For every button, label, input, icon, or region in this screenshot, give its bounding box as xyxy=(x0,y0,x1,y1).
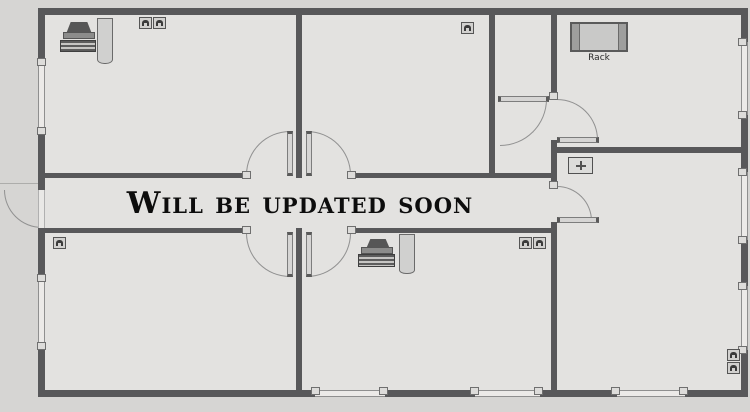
monitor-base-icon xyxy=(63,32,95,39)
wall-right xyxy=(741,350,748,397)
door-jamb xyxy=(242,171,251,179)
wall-port-icon xyxy=(153,17,166,29)
wall-bottom xyxy=(385,390,475,397)
window-joint xyxy=(738,38,747,46)
window xyxy=(617,390,685,397)
entrance-door-arc xyxy=(4,190,42,228)
wall-corridor-top xyxy=(351,173,553,178)
wall-rack-room-bottom xyxy=(551,147,748,153)
wall-left xyxy=(38,346,45,397)
door-jamb xyxy=(549,181,558,189)
window-joint xyxy=(679,387,688,395)
corridor-bottom-right-door-leaf xyxy=(306,232,312,277)
watermark-text: Will be updated soon xyxy=(78,185,522,223)
window xyxy=(38,62,45,131)
rack-side-bar xyxy=(572,24,580,50)
window-joint xyxy=(311,387,320,395)
rack-label: Rack xyxy=(568,53,630,63)
window-joint xyxy=(470,387,479,395)
wall-port-icon xyxy=(461,22,474,34)
window-joint xyxy=(738,111,747,119)
window xyxy=(475,390,540,397)
wall-lower-rooms-divider xyxy=(296,228,302,390)
wall-corridor-bottom xyxy=(351,228,557,233)
window-joint xyxy=(37,342,46,350)
window xyxy=(315,390,385,397)
door-jamb xyxy=(549,92,558,100)
wall-bottom xyxy=(540,390,617,397)
floor-plan: Rack Will be updated soon xyxy=(0,0,750,412)
wall-bottom xyxy=(685,390,748,397)
monitor-base-icon xyxy=(361,247,393,254)
wall-right xyxy=(741,115,748,172)
wall-corridor-bottom xyxy=(45,228,246,233)
wall-left xyxy=(38,228,45,278)
desk-icon xyxy=(399,234,415,274)
window xyxy=(38,278,45,346)
wall-port-icon xyxy=(533,237,546,249)
window-joint xyxy=(738,282,747,290)
right-room-door-leaf xyxy=(557,217,599,223)
corridor-top-left-door-leaf xyxy=(287,131,293,176)
corridor-top-right-door-leaf xyxy=(306,131,312,176)
window xyxy=(741,42,748,115)
window xyxy=(741,286,748,350)
wall-upper-rooms-divider xyxy=(296,15,302,178)
wall-top-middle-room-right xyxy=(489,15,495,178)
door-jamb xyxy=(242,226,251,234)
vestibule-door-leaf xyxy=(498,96,549,102)
window-joint xyxy=(37,58,46,66)
window-joint xyxy=(37,127,46,135)
vent-icon xyxy=(568,157,593,174)
keyboard-icon xyxy=(358,254,395,267)
wall-top xyxy=(38,8,748,15)
corridor-bottom-left-door-leaf xyxy=(287,232,293,277)
rack-side-bar xyxy=(618,24,626,50)
wall-port-icon xyxy=(53,237,66,249)
wall-right xyxy=(741,8,748,42)
window-joint xyxy=(534,387,543,395)
window-joint xyxy=(738,236,747,244)
wall-bottom xyxy=(38,390,315,397)
wall-port-icon xyxy=(727,362,740,374)
desk-icon xyxy=(97,18,113,64)
wall-left xyxy=(38,131,45,190)
wall-rack-room-left xyxy=(551,15,557,97)
door-jamb xyxy=(347,226,356,234)
window-joint xyxy=(379,387,388,395)
wall-right xyxy=(741,240,748,286)
wall-right-rooms-left xyxy=(551,222,557,390)
rack-room-door-leaf xyxy=(557,137,599,143)
exterior-line xyxy=(0,183,40,184)
door-jamb xyxy=(347,171,356,179)
wall-port-icon xyxy=(727,349,740,361)
window-joint xyxy=(738,168,747,176)
window xyxy=(741,172,748,240)
window-joint xyxy=(611,387,620,395)
wall-left xyxy=(38,8,45,62)
keyboard-icon xyxy=(60,40,96,52)
wall-port-icon xyxy=(519,237,532,249)
wall-port-icon xyxy=(139,17,152,29)
rack-icon xyxy=(570,22,628,52)
window-joint xyxy=(37,274,46,282)
wall-corridor-top xyxy=(45,173,246,178)
entrance-door-opening xyxy=(38,190,45,228)
